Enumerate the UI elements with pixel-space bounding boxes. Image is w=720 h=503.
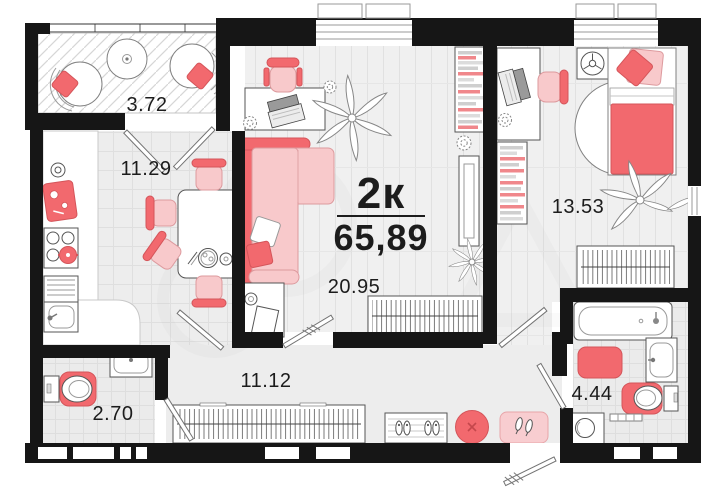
floor-plan: 2к 65,89 3.72 11.29 20.95 13.53 11.12 2.… [0, 0, 720, 503]
door-mat [500, 412, 548, 443]
plant-ball-2 [324, 81, 336, 93]
bookshelf-living [455, 47, 486, 132]
plan-title-rooms: 2к [357, 169, 406, 218]
kitchen-chair-left [146, 196, 176, 230]
mug [51, 163, 65, 177]
ceiling-fan [577, 48, 608, 79]
cutting-board [43, 180, 78, 222]
room-label-balcony: 3.72 [127, 94, 168, 116]
room-label-hallway: 11.12 [240, 370, 291, 392]
bath-sink [646, 338, 677, 382]
wc-toilet [44, 372, 96, 406]
bathtub [574, 302, 672, 340]
room-label-kitchen: 11.29 [120, 158, 171, 180]
tv [459, 156, 479, 246]
side-window [688, 186, 701, 216]
plant-ball-3 [457, 136, 471, 150]
shoe-rack [385, 413, 447, 443]
kitchen-sink [44, 276, 78, 332]
room-label-bathroom: 4.44 [572, 383, 613, 405]
bookshelf-bedroom [497, 142, 527, 224]
stove [44, 228, 78, 268]
room-label-bedroom: 13.53 [552, 196, 605, 218]
bath-mat [578, 347, 622, 378]
bedroom-window [574, 4, 658, 46]
balcony-table [107, 39, 147, 79]
desk-plant-ball [244, 117, 257, 130]
sofa-pillow-red [246, 241, 273, 268]
room-label-living: 20.95 [328, 276, 381, 298]
wardrobe-bedroom [577, 246, 674, 288]
pouf [456, 411, 489, 444]
office-chair-bedroom [538, 70, 568, 104]
wardrobe-living [368, 296, 482, 336]
kitchen-chair-bottom [192, 276, 226, 307]
balcony-glazing [50, 23, 216, 33]
kitchen-chair-top [192, 159, 226, 190]
bed-blanket [611, 104, 673, 174]
wardrobe-hall [173, 403, 365, 443]
dining-table [178, 190, 240, 278]
plan-title-area: 65,89 [333, 217, 428, 258]
plant-ball-4 [499, 114, 512, 127]
living-window [316, 4, 412, 46]
bath-step-rug [610, 414, 642, 421]
bath-toilet [622, 383, 678, 414]
room-label-wc: 2.70 [93, 403, 134, 425]
